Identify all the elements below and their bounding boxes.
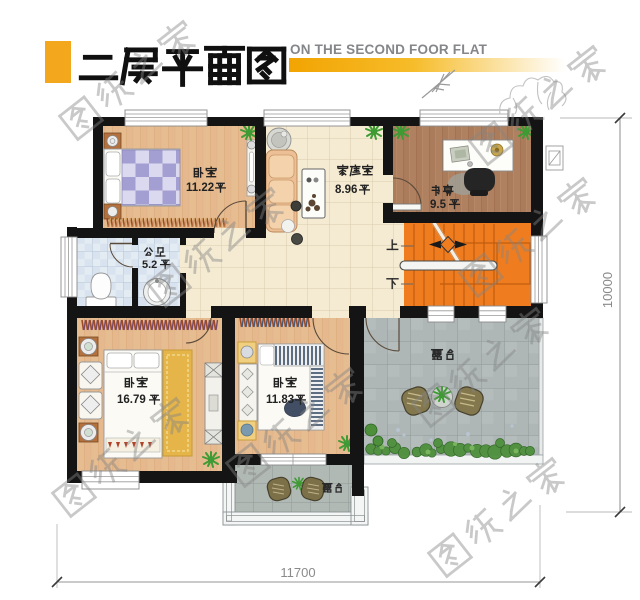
svg-text:16.79: 16.79 — [117, 394, 146, 406]
svg-text:11.22: 11.22 — [186, 182, 214, 194]
svg-text:10000: 10000 — [600, 272, 615, 308]
svg-text:11.83: 11.83 — [266, 394, 294, 406]
svg-text:ON THE SECOND FOOR FLAT: ON THE SECOND FOOR FLAT — [290, 42, 488, 57]
svg-text:5.2: 5.2 — [142, 259, 157, 271]
svg-text:9.5: 9.5 — [430, 199, 447, 211]
svg-text:11700: 11700 — [280, 565, 315, 580]
svg-text:8.96: 8.96 — [335, 184, 357, 196]
